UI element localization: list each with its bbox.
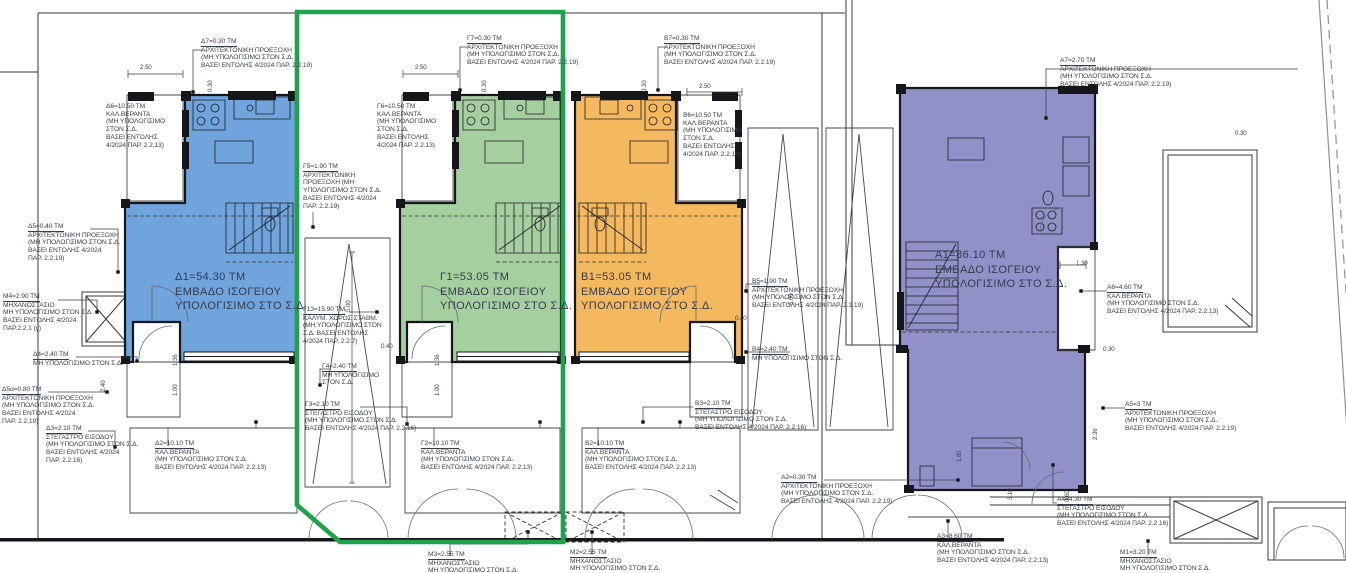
pool — [1163, 150, 1257, 332]
unit-delta-shape[interactable] — [125, 95, 296, 362]
unit-alpha-shape[interactable] — [900, 88, 1095, 490]
sliding-door-sills — [184, 352, 689, 361]
plan-canvas — [0, 0, 1346, 573]
mechanical-room-m2 — [566, 512, 624, 542]
mechanical-room-m1 — [1170, 497, 1262, 543]
mechanical-room-m3 — [505, 512, 563, 542]
unit-gamma-shape[interactable] — [400, 95, 561, 362]
unit-beta-shape[interactable] — [575, 95, 742, 362]
garage — [1268, 502, 1346, 560]
floor-plan-drawing: Δ7=0.30 ΤΜΑΡΧΙΤΕΚΤΟΝΙΚΗ ΠΡΟΕΞΟΧΗ(ΜΗ ΥΠΟΛ… — [0, 0, 1346, 573]
road-boundary — [1319, 0, 1346, 462]
